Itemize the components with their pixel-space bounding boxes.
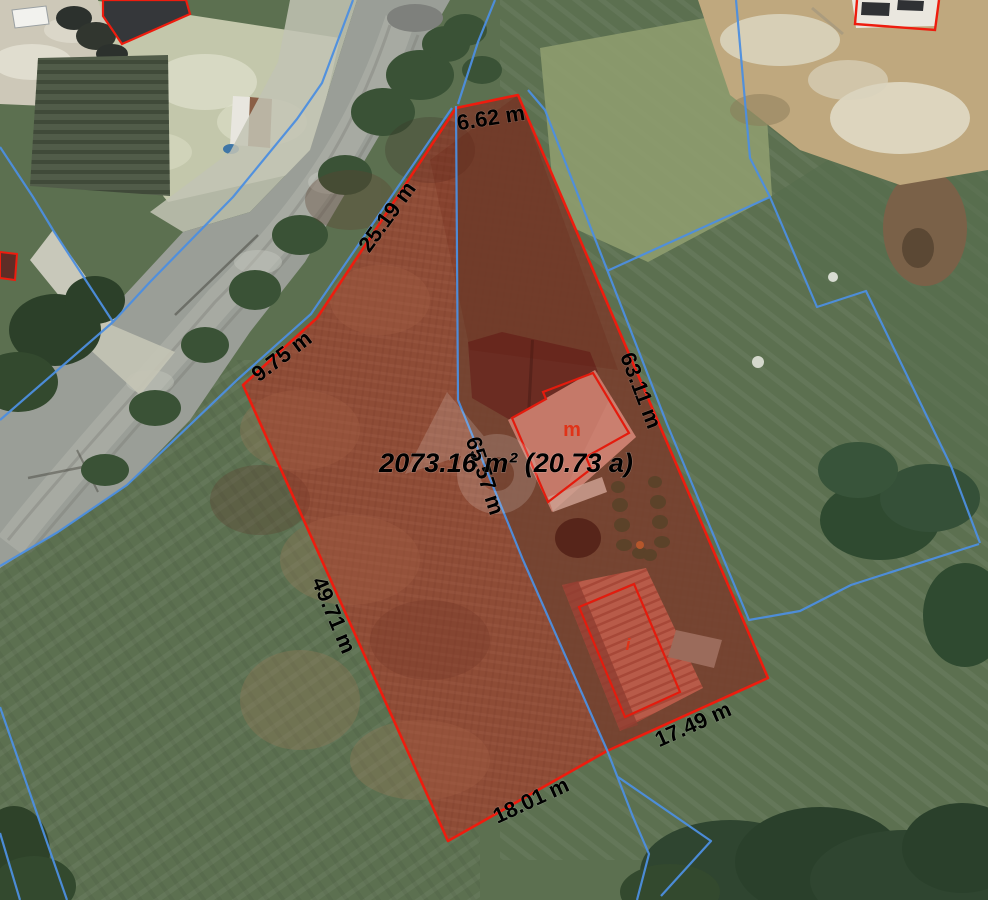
- main-house-mark: m: [563, 419, 581, 441]
- map-viewport[interactable]: 6.62 m 25.19 m 9.75 m 63.11 m 65.57 m 49…: [0, 0, 988, 900]
- area-label: 2073.16 m² (20.73 a): [378, 448, 633, 478]
- white-van: [12, 6, 49, 28]
